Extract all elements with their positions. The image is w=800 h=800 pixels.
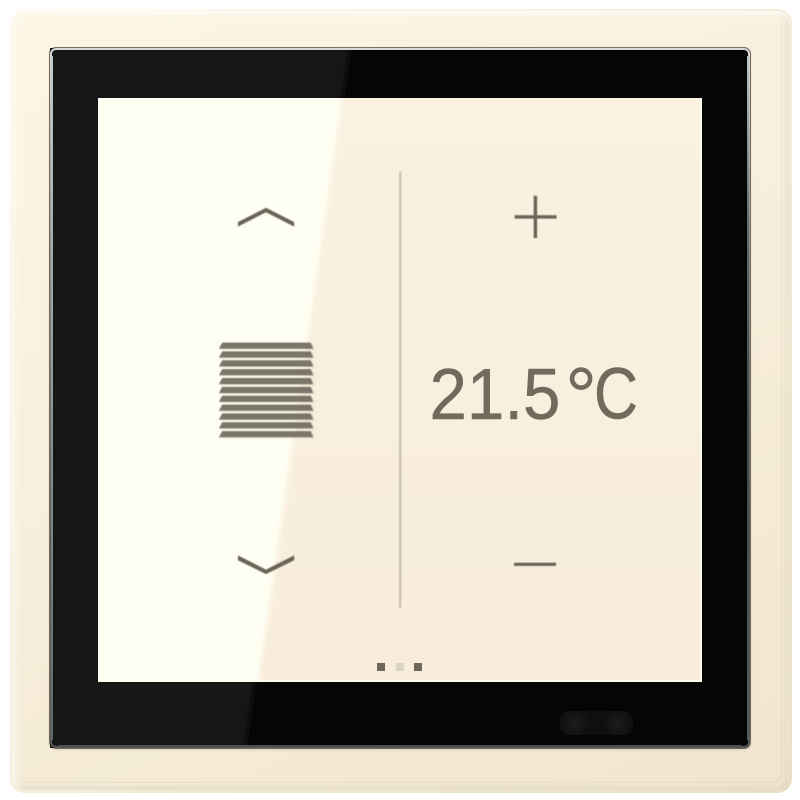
svg-text:21.5: 21.5 [430, 355, 561, 435]
svg-text:C: C [594, 355, 638, 435]
